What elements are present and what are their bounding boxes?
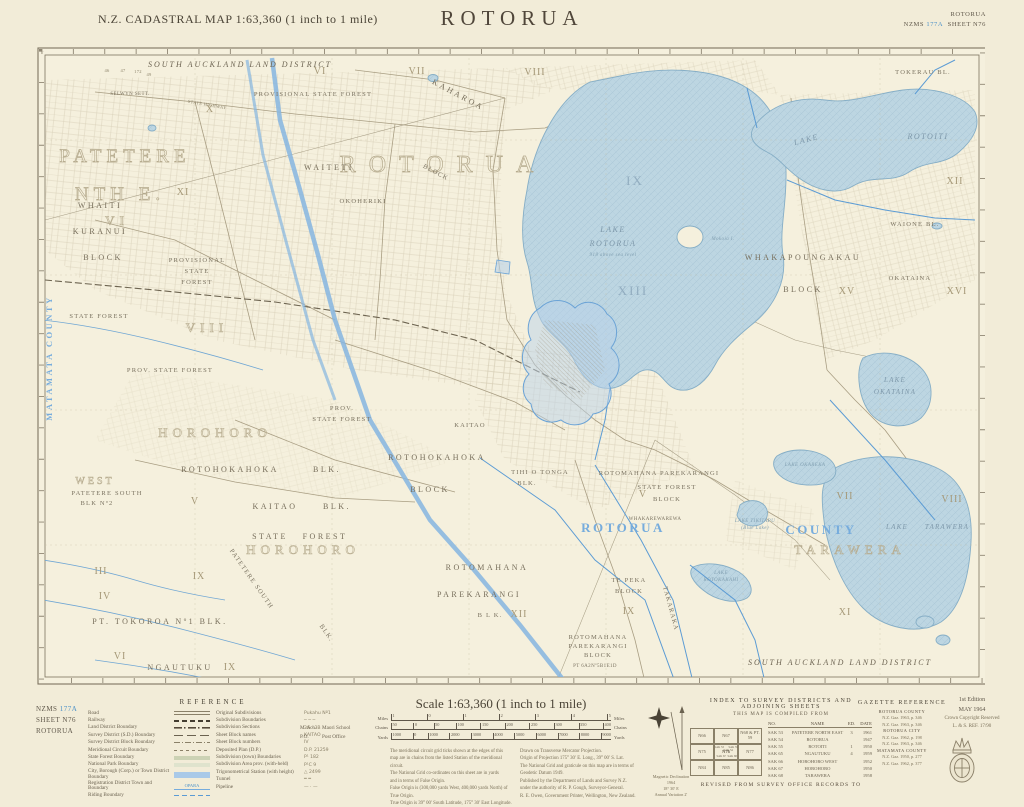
map-label: ROTOMAHANA — [569, 634, 628, 641]
abbreviation: P.O.Post Office — [300, 733, 350, 742]
sheet-grid-cell: N84 — [690, 760, 714, 776]
map-label: VI — [314, 66, 327, 77]
map-label: KAITAO — [454, 422, 486, 429]
index-subtitle: THIS MAP IS COMPILED FROM — [690, 712, 872, 717]
sheet-grid-cell: N77 — [738, 744, 762, 760]
map-label: VIII — [186, 320, 228, 335]
scale-title: Scale 1:63,360 (1 inch to 1 mile) — [370, 696, 632, 712]
map-label: TIHI O TONGA — [511, 469, 569, 476]
map-label: V — [639, 489, 647, 500]
note-line: The National Grid co-ordinates on this s… — [390, 770, 515, 777]
map-label: ROTORUA — [581, 520, 665, 535]
map-label: 918 above sea level — [590, 253, 637, 258]
map-label: B L K. — [478, 612, 503, 619]
map-label: OKOHERIKI — [340, 198, 387, 205]
legend-item: Railway — [88, 717, 210, 724]
map-label: ROTOKAKAHI — [702, 578, 738, 583]
note-line: Published by the Department of Lands and… — [520, 778, 652, 785]
map-label: HOROHORO — [246, 542, 360, 557]
reference-number: L. & S. REF. 17/90 — [928, 723, 1016, 731]
legend-item: Registration District Town and BoundaryO… — [88, 781, 210, 792]
map-label: BLK. — [323, 502, 351, 511]
map-label: BLK Nº2 — [81, 500, 114, 507]
ngongotaha-town — [495, 260, 510, 274]
sheet-grid-inner-labels: SAK 53 SAK 54 SAK 55 SAK 67 SAK 68 — [714, 744, 738, 760]
table-row: SAK 68TARAWERA 1958 — [768, 772, 872, 779]
note-line: The meridional circuit grid ticks shown … — [390, 748, 515, 755]
inner-sheet-label: SAK 68 — [728, 754, 737, 758]
map-label: PATETERE — [59, 146, 190, 167]
map-label: X — [206, 104, 214, 115]
map-label: ROTOHOKAHOKA — [388, 453, 486, 462]
sheet-grid-cell: N66 — [690, 728, 714, 744]
map-label: LAKE OKAREKA — [784, 463, 826, 468]
map-label: (Blue Lake) — [741, 526, 769, 531]
scale-bar-miles: Miles 1012345 Miles — [370, 714, 632, 721]
note-line: R. E. Owen, Government Printer, Wellingt… — [520, 793, 652, 800]
map-label: BLOCK — [584, 652, 612, 659]
edition-date: MAY 1964 — [928, 706, 1016, 716]
map-label: BLOCK — [615, 588, 643, 595]
map-label: 172 — [134, 69, 142, 74]
small-lake — [936, 635, 950, 645]
map-label: IV — [99, 591, 112, 602]
declination-line: Annual Variation 2′ — [636, 792, 706, 798]
map-label: IX — [623, 606, 636, 617]
map-label: VI — [114, 651, 127, 662]
map-label: LAKE — [713, 571, 728, 576]
sheet-reference: ROTORUA NZMS 177A SHEET N76 — [904, 10, 986, 30]
map-label: PT. TOKOROA Nº1 BLK. — [92, 617, 227, 626]
map-label: VII — [409, 66, 426, 77]
note-line: Drawn on Transverse Mercator Projection. — [520, 748, 652, 755]
reference-title: REFERENCE — [88, 698, 338, 706]
note-line: and in terms of False Origin. — [390, 778, 515, 785]
map-label: HOROHORO — [158, 425, 272, 440]
index-title: INDEX TO SURVEY DISTRICTS AND ADJOINING … — [690, 698, 872, 710]
legend-item: Subdivision Area prov. (with-held)P¹C 9 — [216, 762, 338, 769]
map-label: TE PEKA — [612, 577, 647, 584]
map-label: STATE — [252, 532, 288, 541]
map-label: TOKERAU BL. — [895, 69, 951, 76]
map-label: XI — [177, 187, 190, 198]
map-label: From "Te Matata" Bay of Plenty Meridiona… — [671, 41, 779, 46]
map-label: TARAWERA — [925, 523, 969, 531]
map-label: TARAWERA — [794, 542, 906, 557]
map-label: BLOCK — [410, 485, 450, 494]
edition-block: 1st Edition MAY 1964 Crown Copyright Res… — [928, 696, 1016, 731]
map-label: ROTOHOKAHOKA — [181, 465, 279, 474]
map-label: PROV. STATE FOREST — [127, 367, 213, 374]
compass-star-icon — [648, 707, 670, 729]
projection-notes-left: The meridional circuit grid ticks shown … — [390, 748, 515, 807]
note-line: under the authority of R. P. Gough, Surv… — [520, 785, 652, 792]
map-label: Mokoia I. — [710, 237, 734, 242]
map-label: 47 — [120, 68, 126, 73]
map-label: WAIONE BL. — [890, 221, 939, 228]
map-label: IX — [193, 571, 206, 582]
map-marginalia: NZMS 177A SHEET N76 ROTORUA REFERENCE Ro… — [0, 690, 1024, 805]
index-block: INDEX TO SURVEY DISTRICTS AND ADJOINING … — [690, 698, 872, 717]
map-label: SELWYN SETT. — [110, 92, 149, 97]
sheet-id-block: NZMS 177A SHEET N76 ROTORUA — [36, 704, 77, 738]
sheet-grid-cell: N86 — [738, 760, 762, 776]
map-label: VIII — [941, 494, 962, 505]
map-label: PROVISIONAL STATE FOREST — [254, 91, 372, 98]
legend-item: Pipeline— · — — [216, 784, 338, 791]
inner-sheet-label: SAK 55 — [729, 745, 738, 749]
map-label: 49 — [146, 72, 152, 77]
map-label: VII — [837, 491, 854, 502]
map-label: WHAKAPOUNGAKAU — [745, 253, 861, 262]
map-label: FOREST — [303, 532, 348, 541]
sheet-id-series: NZMS 177A — [36, 704, 77, 715]
small-pond — [148, 125, 156, 131]
map-label: STATE FOREST — [312, 416, 371, 423]
abbreviation: M. Sch.Maori School — [300, 724, 350, 733]
legend-item: Riding Boundary — [88, 792, 210, 799]
legend-item: State Forest Boundary — [88, 754, 210, 761]
map-canvas: From "Mt. Eden" Mt. Eden Meridional Circ… — [35, 40, 985, 692]
map-label: LAKE — [883, 376, 906, 384]
map-label: BLOCK — [83, 253, 123, 262]
note-line: Geodetic Datum 1949. — [520, 770, 652, 777]
map-label: IX — [626, 173, 644, 188]
page-title: ROTORUA — [0, 6, 1024, 31]
note-line: Origin of Projection 175° 30′ E. Long., … — [520, 755, 652, 762]
map-label: ROTOMAHANA — [446, 563, 529, 572]
sheet-grid-cell: N75 — [690, 744, 714, 760]
projection-notes-right: Drawn on Transverse Mercator Projection.… — [520, 748, 652, 800]
legend-item: City, Borough (Corp.) or Town District B… — [88, 769, 210, 780]
map-label: COUNTY — [785, 522, 856, 537]
map-label: IX — [224, 662, 237, 673]
map-label: BLOCK — [653, 496, 681, 503]
map-label: XVI — [947, 286, 968, 297]
map-label: PROVISIONAL — [169, 257, 226, 264]
map-label: OKATAINA — [889, 275, 932, 282]
map-label: KAITAO — [252, 502, 297, 511]
map-label: STATE — [185, 268, 210, 275]
map-label: LAKE — [885, 523, 908, 531]
sheet-reference-name: ROTORUA — [904, 10, 986, 20]
map-label: WEST — [75, 476, 114, 487]
map-label: WHAITI — [78, 201, 122, 210]
reference-legend: REFERENCE RoadRailwayLand District Bound… — [88, 698, 338, 706]
reference-column-2: Original SubdivisionsPukahu Nº1Subdivisi… — [216, 710, 338, 791]
sheet-number: SHEET N76 — [948, 21, 986, 28]
series-number: 177A — [926, 21, 943, 28]
compass-rose — [648, 706, 694, 772]
scale-bar-chains: Chains 50050100150200250300350400 Chains — [370, 723, 632, 730]
map-label: SOUTH AUCKLAND LAND DISTRICT — [748, 658, 932, 667]
map-label: From "Mt. Eden" Mt. Eden Meridional Circ… — [202, 41, 299, 46]
map-label: SOUTH AUCKLAND LAND DISTRICT — [148, 60, 332, 69]
abbreviations-block: M. Sch.Maori SchoolP.O.Post Office — [300, 724, 350, 742]
map-label: III — [95, 566, 108, 577]
scale-block: Scale 1:63,360 (1 inch to 1 mile) Miles … — [370, 696, 632, 740]
note-line: True Origin is 39° 00′ South Latitude, 1… — [390, 800, 515, 807]
map-label: VIII — [524, 67, 545, 78]
map-label: FOREST — [181, 279, 212, 286]
map-label: BLK. — [313, 465, 341, 474]
legend-item: Original SubdivisionsPukahu Nº1 — [216, 710, 338, 717]
legend-item: Survey District Block Boundary — [88, 740, 210, 747]
sheet-reference-number: NZMS 177A SHEET N76 — [904, 20, 986, 30]
map-label: XI — [839, 607, 852, 618]
map-label: LAKE TIKITAPU — [734, 519, 775, 524]
map-label: OKATAINA — [874, 388, 916, 396]
map-label: XV — [839, 286, 855, 297]
small-lake — [916, 616, 934, 628]
map-label: ROTOITI — [906, 132, 948, 141]
edition-number: 1st Edition — [928, 696, 1016, 706]
sheet-id-name: ROTORUA — [36, 726, 77, 737]
map-label: E. Long. 176° 0′ — [323, 40, 357, 45]
gazette-line: N.Z. Gaz. 1962, p. 377 — [848, 761, 956, 767]
map-label: VI — [105, 213, 129, 228]
map-label: BLOCK — [783, 285, 823, 294]
map-label: WAITETI — [304, 163, 354, 172]
map-label: XII — [947, 176, 964, 187]
sheet-grid-cell: N68 & PT. 59 — [738, 728, 762, 744]
series-prefix: NZMS — [904, 21, 927, 28]
inner-sheet-label: SAK 53 — [715, 745, 724, 749]
sheet-id-number: SHEET N76 — [36, 715, 77, 726]
legend-item: Land District Boundary — [88, 725, 210, 732]
map-label: V — [191, 496, 199, 507]
note-line: The National Grid and graticule on this … — [520, 763, 652, 770]
legend-item: Trigonometrical Station (with height)△ 2… — [216, 769, 338, 776]
map-label: MATAMATA COUNTY — [44, 295, 54, 420]
legend-item: Road — [88, 710, 210, 717]
reference-column-1: RoadRailwayLand District BoundarySurvey … — [88, 710, 210, 800]
map-label: XII — [511, 609, 528, 620]
note-line: False Origin is (300,000 yards West, 400… — [390, 785, 515, 800]
map-label: PROV. — [330, 405, 354, 412]
map-label: ROTORUA — [589, 239, 637, 248]
legend-item: Meridional Circuit Boundary — [88, 747, 210, 754]
note-line: map are in chains from the listed Statio… — [390, 755, 515, 770]
copyright-note: Crown Copyright Reserved — [928, 715, 1016, 723]
legend-item: Survey District (S.D.) Boundary — [88, 732, 210, 739]
map-label: ROTOMAHANA PAREKARANGI — [599, 470, 719, 477]
map-label: BLK. — [517, 480, 536, 487]
revised-note: REVISED FROM SURVEY OFFICE RECORDS TO — [690, 782, 872, 788]
inner-sheet-label: SAK 67 — [717, 754, 726, 758]
sheet-grid-cell: N67 — [714, 728, 738, 744]
map-label: PAREKARANGI — [568, 643, 627, 650]
map-label: LAKE — [599, 225, 626, 234]
map-label: PATETERE SOUTH — [71, 490, 142, 497]
map-label: NGAUTUKU — [147, 663, 212, 672]
map-label: STATE FOREST — [69, 313, 128, 320]
mokoia-island — [677, 226, 703, 248]
map-label: XIII — [618, 283, 648, 298]
map-label: 46 — [104, 68, 110, 73]
royal-crest-icon — [944, 734, 980, 786]
map-label: PT 6A2Nº5B1E1D — [573, 663, 617, 669]
legend-item: Deposited Plan (D.P.)D.P. 21259 — [216, 747, 338, 754]
map-label: KURANUI — [73, 227, 127, 236]
legend-item: Tunnel═ ═ — [216, 777, 338, 784]
scale-bar-yards: Yards 1000010002000300040005000600070008… — [370, 733, 632, 740]
sheet-grid-cell: N85 — [714, 760, 738, 776]
map-label: PAREKARANGI — [437, 590, 521, 599]
